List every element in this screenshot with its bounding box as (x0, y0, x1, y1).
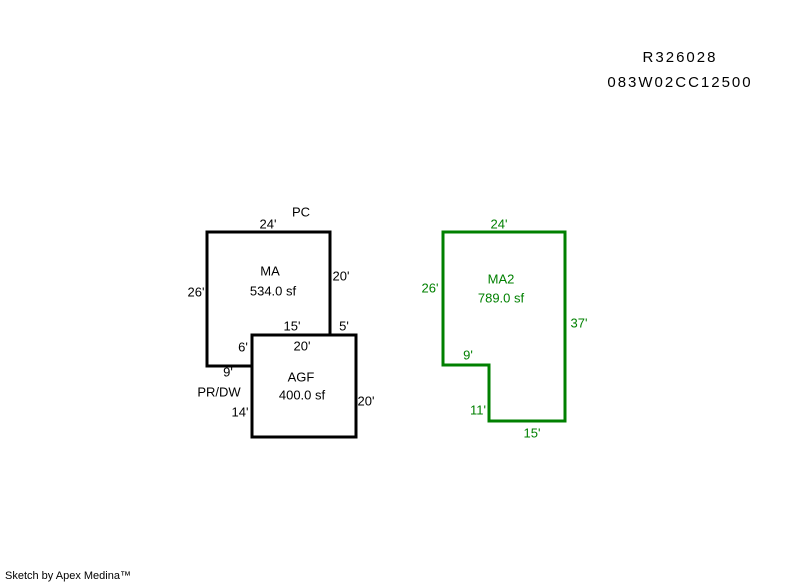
agf-attached-label: PR/DW (197, 386, 240, 399)
sketch-credit: Sketch by Apex Medina™ (5, 570, 131, 582)
agf-dim-top: 20' (294, 340, 311, 353)
ma-dim-left: 26' (188, 286, 205, 299)
ma-name-label: MA (260, 265, 280, 278)
ma2-name-label: MA2 (488, 273, 515, 286)
ma-area-label: 534.0 sf (250, 285, 296, 298)
ma-dim-top: 24' (260, 218, 277, 231)
ma2-dim-bottom: 15' (524, 427, 541, 440)
ma-dim-right: 20' (333, 270, 350, 283)
agf-dim-right: 20' (358, 395, 375, 408)
ma-dim-bottom: 9' (223, 366, 233, 379)
ma2-dim-right: 37' (571, 317, 588, 330)
sketch-drawing (0, 0, 800, 587)
ma2-dim-notch-bottom: 9' (463, 349, 473, 362)
ma2-dim-top: 24' (491, 218, 508, 231)
ma-dim-notch: 6' (238, 341, 248, 354)
agf-area-label: 400.0 sf (279, 389, 325, 402)
agf-dim-top-right: 5' (339, 320, 349, 333)
ma-dim-bottom-shared: 15' (284, 320, 301, 333)
agf-dim-left: 14' (232, 406, 249, 419)
ma2-dim-left: 26' (422, 282, 439, 295)
sketch-page: R326028 083W02CC12500 PC 24' MA 534.0 sf… (0, 0, 800, 587)
building-ma-outline (207, 232, 330, 366)
building-ma2-outline (443, 232, 565, 421)
ma2-area-label: 789.0 sf (478, 292, 524, 305)
ma2-dim-notch-side: 11' (470, 404, 486, 417)
agf-name-label: AGF (288, 371, 315, 384)
ma-attached-label: PC (292, 206, 310, 219)
